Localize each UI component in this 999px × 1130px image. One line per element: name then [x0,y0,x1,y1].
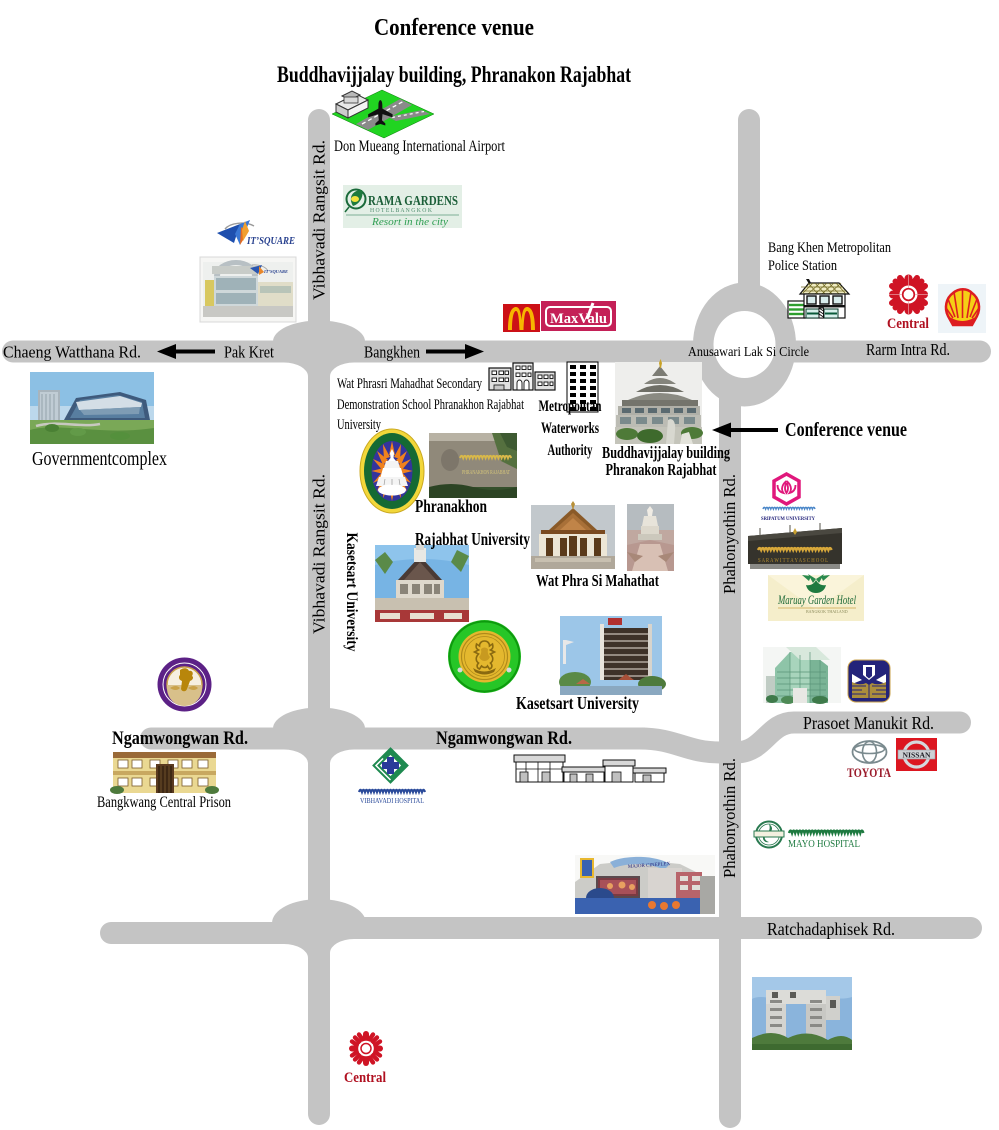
svg-text:S A R A W I T T A Y A S C H: S A R A W I T T A Y A S C H O O L [758,558,828,564]
svg-text:TOYOTA: TOYOTA [847,765,891,780]
svg-text:Rajabhat University: Rajabhat University [415,529,530,549]
svg-text:IT’SQUARE: IT’SQUARE [263,269,288,274]
svg-text:Pak Kret: Pak Kret [224,343,274,362]
svg-text:Governmentcomplex: Governmentcomplex [32,449,167,470]
svg-text:Phahonyothin Rd.: Phahonyothin Rd. [720,474,739,594]
svg-text:Ngamwongwan Rd.: Ngamwongwan Rd. [436,728,572,749]
svg-text:Ngamwongwan Rd.: Ngamwongwan Rd. [112,728,248,749]
svg-text:Chaeng Watthana Rd.: Chaeng Watthana Rd. [3,343,141,362]
svg-text:Anusawari Lak Si Circle: Anusawari Lak Si Circle [688,345,809,360]
svg-text:Demonstration School Phranakho: Demonstration School Phranakhon Rajabhat [337,397,525,413]
svg-text:RAMA GARDENS: RAMA GARDENS [368,194,458,209]
svg-text:Prasoet Manukit Rd.: Prasoet Manukit Rd. [803,713,934,733]
svg-text:Kasetsart University: Kasetsart University [343,533,360,652]
svg-text:Phranakon Rajabhat: Phranakon Rajabhat [606,460,717,479]
svg-text:Vibhavadi Rangsit Rd.: Vibhavadi Rangsit Rd. [310,140,329,300]
svg-text:Ratchadaphisek Rd.: Ratchadaphisek Rd. [767,919,895,939]
svg-text:NISSAN: NISSAN [903,751,932,760]
svg-text:MAYO HOSPITAL: MAYO HOSPITAL [788,839,860,850]
svg-text:IT’SQUARE: IT’SQUARE [246,236,295,247]
svg-text:Central: Central [887,316,929,332]
svg-text:Conference venue: Conference venue [785,420,907,441]
svg-text:Resort in the city: Resort in the city [371,216,448,228]
svg-text:Bangkhen: Bangkhen [364,343,420,362]
svg-text:Maruay Garden Hotel: Maruay Garden Hotel [777,592,856,607]
svg-text:Waterworks: Waterworks [541,420,599,437]
svg-text:Kasetsart University: Kasetsart University [516,693,639,713]
svg-text:Authority: Authority [548,442,593,459]
svg-text:Phranakhon: Phranakhon [415,496,487,516]
svg-text:Vibhavadi Rangsit Rd.: Vibhavadi Rangsit Rd. [310,474,329,634]
svg-text:Metropolitan: Metropolitan [539,398,602,415]
svg-text:Bangkwang Central Prison: Bangkwang Central Prison [97,794,231,811]
svg-text:MaxValu: MaxValu [550,311,607,327]
svg-text:Police Station: Police Station [768,258,837,274]
svg-text:Don Mueang International Airpo: Don Mueang International Airport [334,138,506,155]
svg-text:Rarm Intra Rd.: Rarm Intra Rd. [866,340,950,359]
svg-text:Wat Phra Si Mahathat: Wat Phra Si Mahathat [536,571,659,590]
svg-text:Phahonyothin Rd.: Phahonyothin Rd. [720,758,739,878]
svg-text:H O T E L B A N G K O K: H O T E L B A N G K O K [370,208,433,214]
svg-text:Central: Central [344,1070,386,1086]
svg-text:VIBHAVADI HOSPITAL: VIBHAVADI HOSPITAL [360,797,424,805]
svg-text:SRIPATUM UNIVERSITY: SRIPATUM UNIVERSITY [761,516,815,522]
svg-text:Wat Phrasri Mahadhat Secondary: Wat Phrasri Mahadhat Secondary [337,376,482,392]
svg-text:Buddhavijjalay building, Phran: Buddhavijjalay building, Phranakon Rajab… [277,62,631,87]
svg-text:Bang Khen Metropolitan: Bang Khen Metropolitan [768,240,891,256]
svg-text:Conference venue: Conference venue [374,15,534,41]
svg-text:PHRANAKHON RAJABHAT: PHRANAKHON RAJABHAT [462,469,510,476]
svg-text:University: University [337,417,381,433]
svg-text:BANGKOK THAILAND: BANGKOK THAILAND [806,609,848,614]
